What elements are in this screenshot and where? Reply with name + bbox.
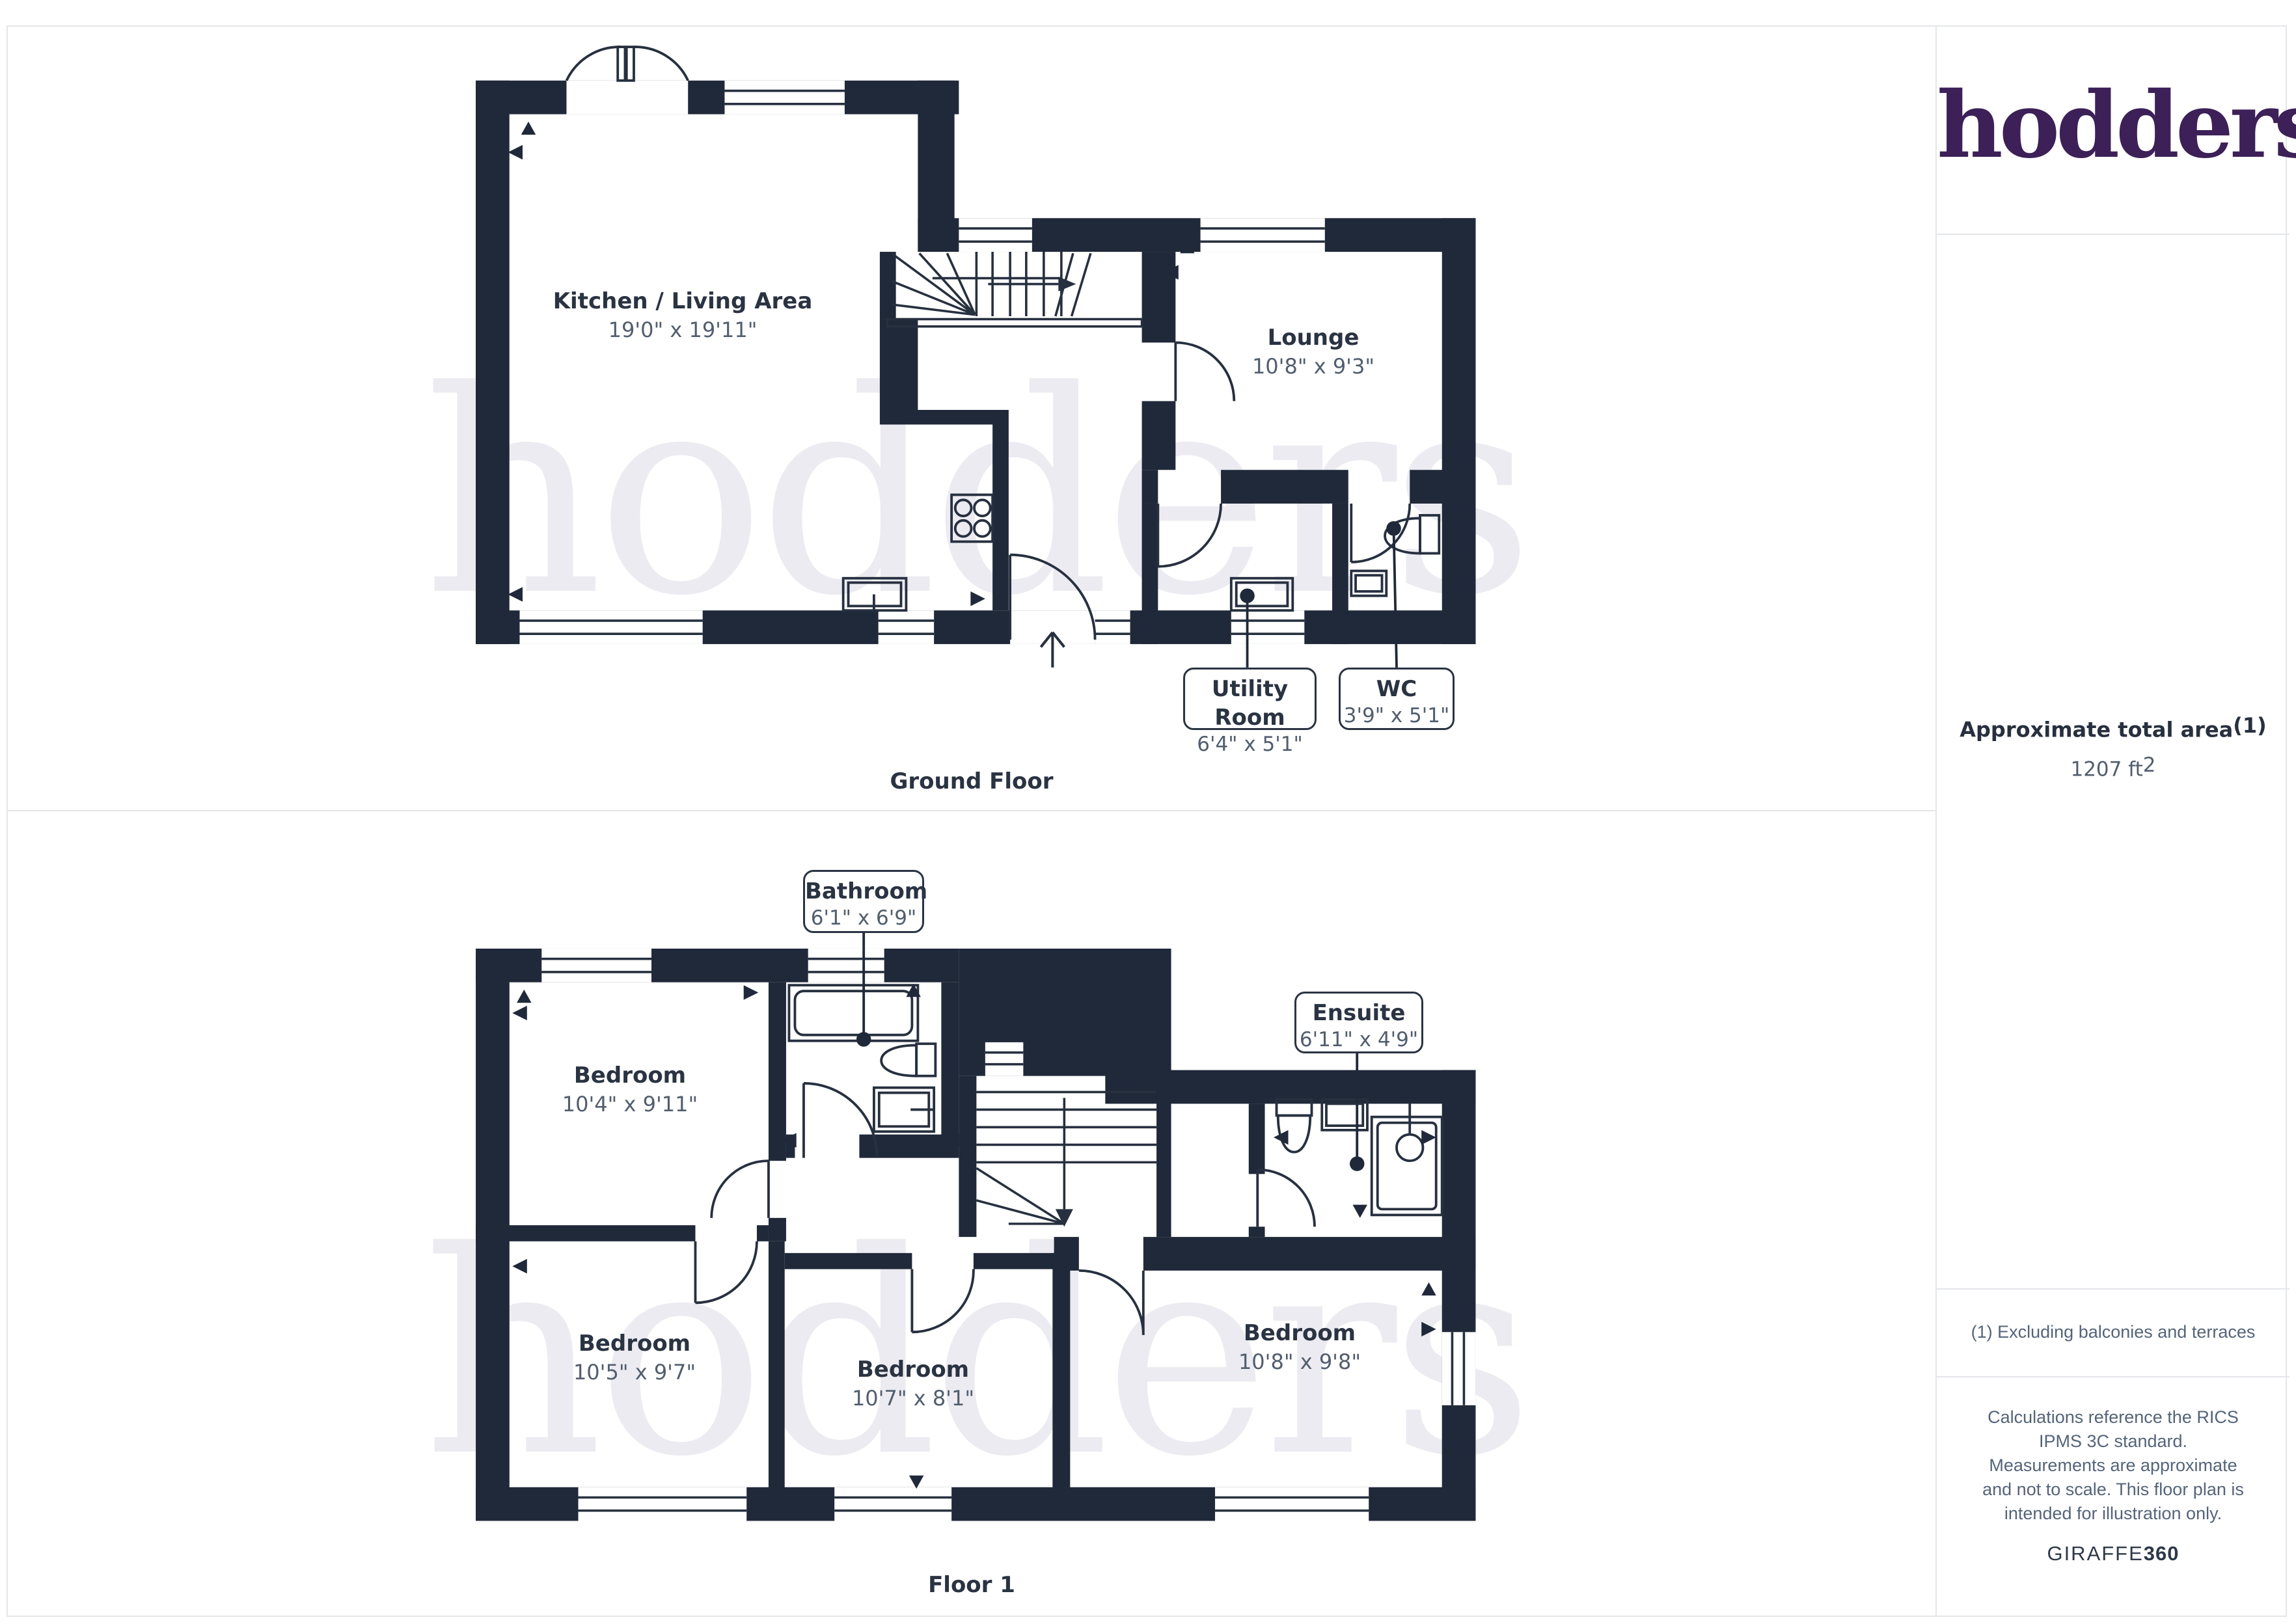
- room-label-lounge: Lounge 10'8" x 9'3": [1118, 323, 1509, 380]
- room-name: Bedroom: [718, 1355, 1108, 1385]
- bathroom-leader-dot: [856, 1032, 871, 1046]
- sidebar-divider-footnote-bottom: [1937, 1376, 2289, 1377]
- floorplan-page: hodders hodders: [0, 0, 2296, 1624]
- callout-utility-room: Utility Room 6'4" x 5'1": [1183, 668, 1317, 730]
- room-dims: 19'0" x 19'11": [487, 316, 878, 344]
- area-value-sup: 2: [2143, 753, 2156, 777]
- sidebar-divider: [1935, 25, 1937, 1617]
- giraffe-bold: 360: [2144, 1542, 2180, 1565]
- footnote-text: (1) Excluding balconies and terraces: [1937, 1322, 2289, 1342]
- room-name: Kitchen / Living Area: [487, 286, 878, 316]
- room-label-bedroom-middle: Bedroom 10'7" x 8'1": [718, 1355, 1108, 1412]
- approx-area-title: Approximate total area(1): [1937, 713, 2289, 742]
- room-dims: 10'8" x 9'8": [1104, 1348, 1495, 1375]
- bathroom-toilet: [881, 1044, 935, 1076]
- room-name: Bedroom: [435, 1061, 825, 1090]
- kitchen-sink: [843, 578, 907, 610]
- shower: [1372, 1103, 1442, 1215]
- room-dims: 10'4" x 9'11": [435, 1090, 825, 1118]
- room-name: Bedroom: [1104, 1318, 1495, 1348]
- stairs-direction-arrow: [1058, 277, 1076, 291]
- callout-title: Ensuite: [1296, 999, 1421, 1027]
- callout-dims: 3'9" x 5'1": [1341, 703, 1453, 728]
- wc-sink: [1351, 571, 1386, 595]
- ground-dimension-arrows: [508, 122, 1194, 610]
- room-name: Lounge: [1118, 323, 1509, 353]
- callout-dims: 6'4" x 5'1": [1185, 732, 1315, 757]
- floor-1-label: Floor 1: [776, 1572, 1167, 1598]
- giraffe360-logo: GIRAFFE360: [1937, 1542, 2289, 1565]
- area-value-text: 1207 ft: [2070, 757, 2142, 781]
- callout-title: Utility Room: [1185, 675, 1315, 732]
- floors-divider: [7, 810, 1937, 811]
- room-dims: 10'7" x 8'1": [718, 1385, 1108, 1412]
- room-label-bedroom-right: Bedroom 10'8" x 9'8": [1104, 1318, 1495, 1375]
- room-label-bedroom-top-left: Bedroom 10'4" x 9'11": [435, 1061, 825, 1118]
- sidebar-divider-logo: [1937, 234, 2289, 235]
- area-title-sup: (1): [2233, 713, 2267, 738]
- floor-1-plan: [476, 849, 1479, 1530]
- utility-leader-dot: [1240, 588, 1254, 602]
- callout-ensuite: Ensuite 6'11" x 4'9": [1294, 992, 1423, 1053]
- ensuite-leader-dot: [1350, 1156, 1364, 1171]
- callout-title: Bathroom: [805, 877, 922, 906]
- bathroom-sink: [874, 1088, 934, 1131]
- room-dims: 10'8" x 9'3": [1118, 353, 1509, 380]
- disclaimer-text: Calculations reference the RICS IPMS 3C …: [1980, 1405, 2247, 1526]
- bathtub: [789, 985, 918, 1040]
- callout-leader-lines: [1248, 528, 1397, 668]
- approx-area-value: 1207 ft2: [1937, 753, 2289, 781]
- callout-title: WC: [1341, 675, 1453, 703]
- hob: [951, 494, 992, 541]
- room-label-kitchen-living: Kitchen / Living Area 19'0" x 19'11": [487, 286, 878, 344]
- hodders-logo: hodders: [1937, 77, 2289, 174]
- wc-leader-dot: [1386, 521, 1401, 535]
- giraffe-light: GIRAFFE: [2047, 1542, 2143, 1565]
- ensuite-toilet: [1277, 1100, 1312, 1152]
- area-title-text: Approximate total area: [1960, 717, 2233, 742]
- callout-wc: WC 3'9" x 5'1": [1339, 668, 1455, 730]
- ground-floor-label: Ground Floor: [776, 768, 1167, 794]
- ground-stairs: [887, 252, 1141, 327]
- ensuite-sink: [1322, 1100, 1367, 1130]
- floor1-stairs: [976, 1092, 1156, 1223]
- sidebar-divider-footnote-top: [1937, 1288, 2289, 1290]
- callout-dims: 6'1" x 6'9": [805, 906, 922, 930]
- callout-bathroom: Bathroom 6'1" x 6'9": [803, 870, 924, 933]
- callout-dims: 6'11" x 4'9": [1296, 1027, 1421, 1052]
